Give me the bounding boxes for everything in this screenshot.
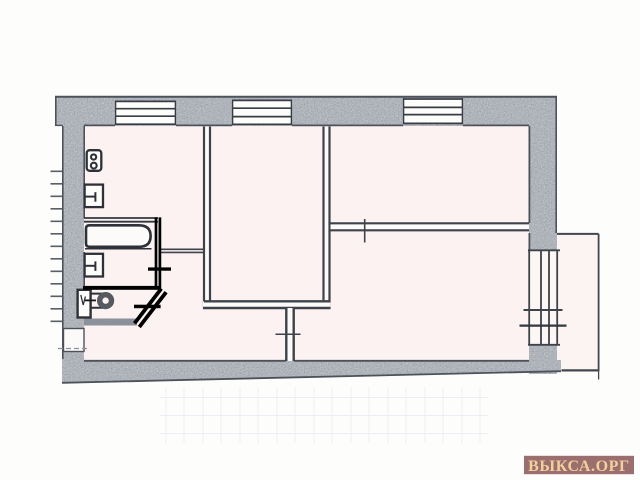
svg-text:ВЫКСА.ОРГ: ВЫКСА.ОРГ: [528, 458, 630, 475]
